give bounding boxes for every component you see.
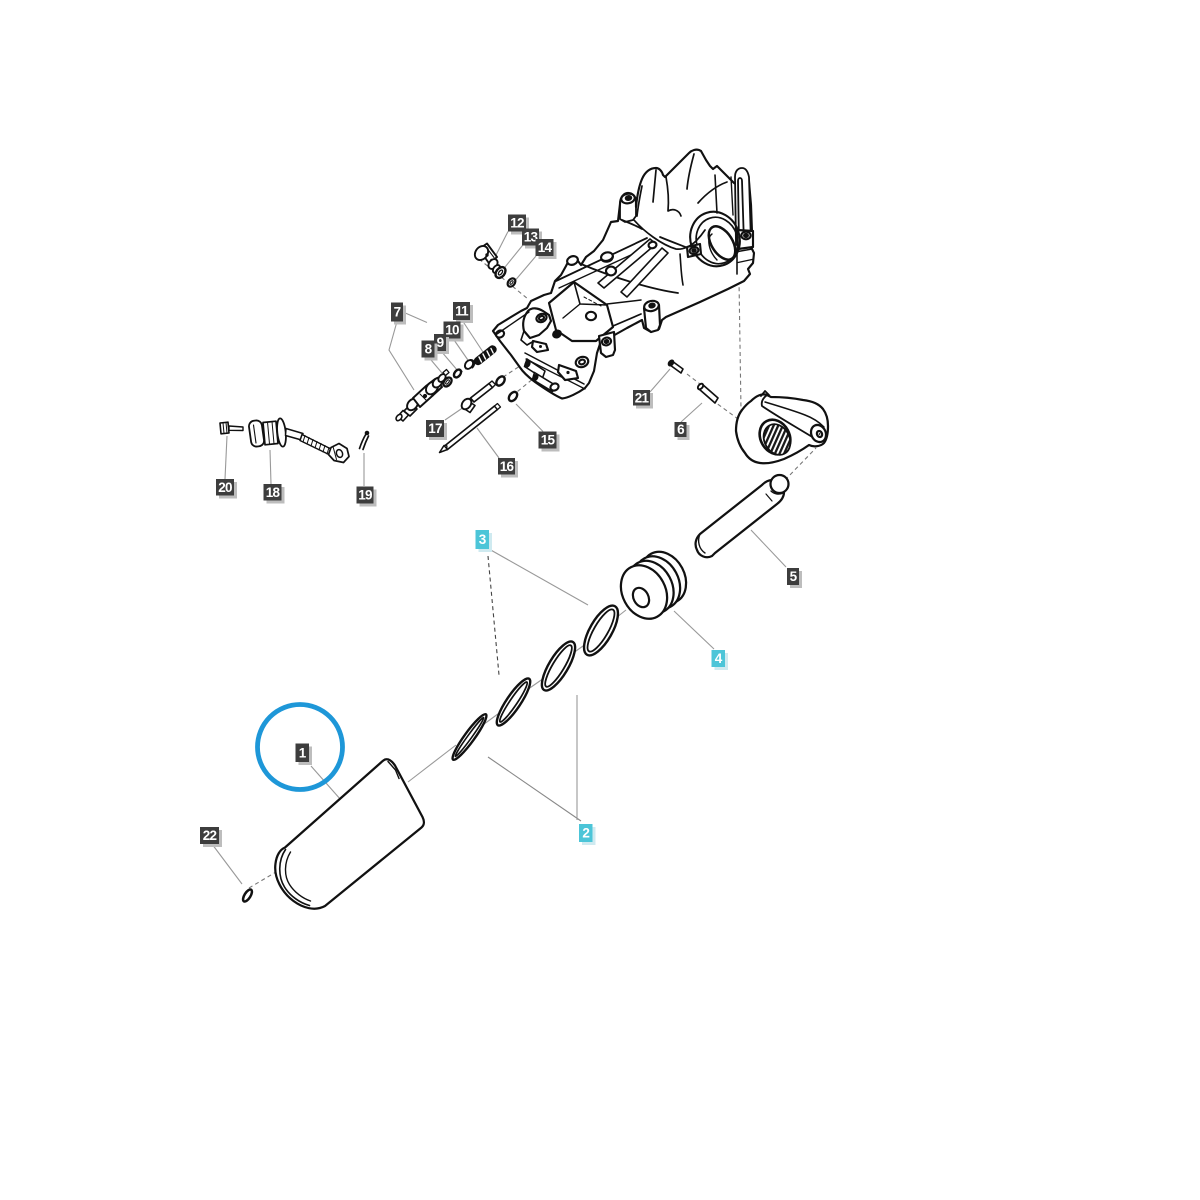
svg-text:12: 12 xyxy=(510,216,524,231)
svg-text:10: 10 xyxy=(445,323,459,338)
svg-text:11: 11 xyxy=(455,304,469,319)
svg-text:3: 3 xyxy=(479,532,487,547)
svg-text:19: 19 xyxy=(358,488,372,503)
svg-text:15: 15 xyxy=(541,433,556,448)
svg-text:7: 7 xyxy=(394,305,401,320)
svg-text:21: 21 xyxy=(635,391,650,406)
svg-text:16: 16 xyxy=(500,459,515,474)
svg-text:8: 8 xyxy=(425,342,433,357)
svg-text:9: 9 xyxy=(437,335,444,350)
svg-text:14: 14 xyxy=(538,240,553,255)
svg-text:2: 2 xyxy=(582,826,589,841)
svg-text:17: 17 xyxy=(428,421,442,436)
svg-text:1: 1 xyxy=(299,746,307,761)
svg-text:20: 20 xyxy=(218,480,232,495)
svg-text:4: 4 xyxy=(715,651,723,666)
svg-text:18: 18 xyxy=(266,485,281,500)
svg-text:6: 6 xyxy=(677,422,685,437)
svg-text:5: 5 xyxy=(790,569,798,584)
svg-text:22: 22 xyxy=(203,828,217,843)
